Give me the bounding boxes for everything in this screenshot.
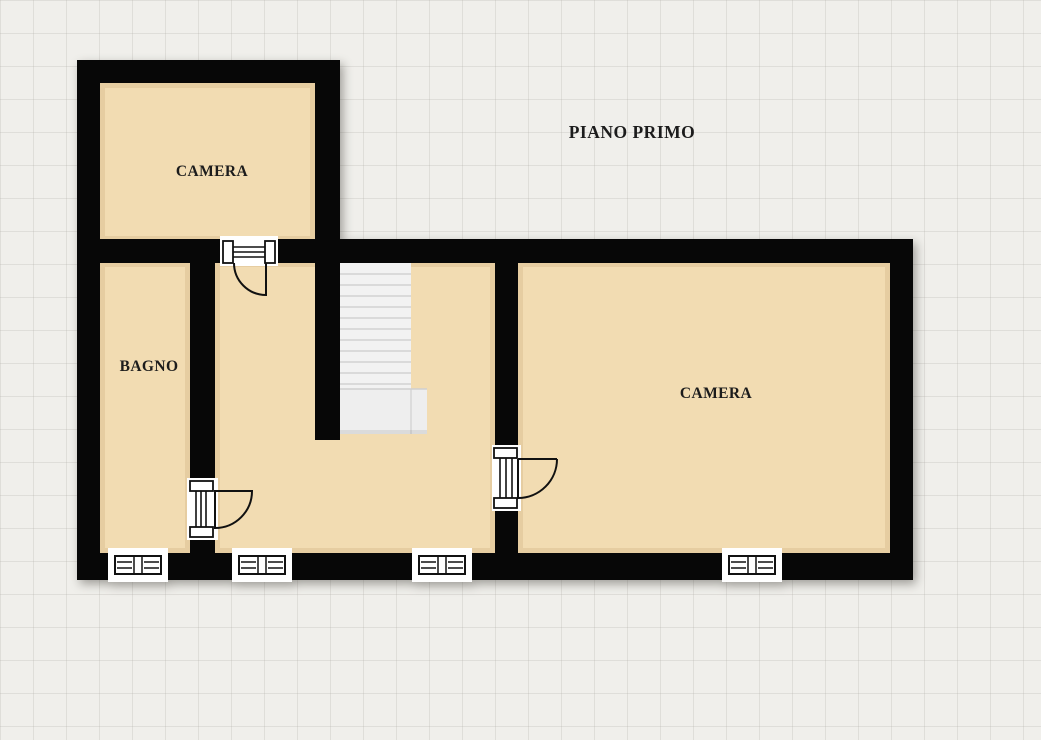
wall-main-top xyxy=(77,239,913,263)
wall-outer-right xyxy=(890,239,913,580)
room-floor-camera-right xyxy=(518,262,890,553)
room-label-camera-right: CAMERA xyxy=(680,385,753,402)
floor-plan-canvas: PIANO PRIMO CAMERA BAGNO CAMERA xyxy=(0,0,1041,740)
stair-landing-shadow xyxy=(340,430,427,434)
wall-outer-left xyxy=(77,60,100,580)
wall-top-left-room-right xyxy=(315,60,340,262)
window-icon-bagno xyxy=(108,548,168,582)
room-floor-bagno xyxy=(100,262,190,553)
wall-top-left-room-top xyxy=(77,60,340,83)
window-icon-hallway-right xyxy=(412,548,472,582)
wall-staircase xyxy=(315,262,340,440)
window-icon-camera-right xyxy=(722,548,782,582)
stair-treads xyxy=(340,262,411,389)
room-label-bagno: BAGNO xyxy=(120,358,179,375)
window-icon-hallway-left xyxy=(232,548,292,582)
building xyxy=(77,60,913,582)
plan-title: PIANO PRIMO xyxy=(569,122,696,142)
room-label-camera-top-left: CAMERA xyxy=(176,163,249,180)
stair-landing xyxy=(340,389,427,434)
floor-plan: PIANO PRIMO CAMERA BAGNO CAMERA xyxy=(0,0,1041,740)
room-floor-camera-top-left xyxy=(100,83,315,241)
wall-outer-bottom xyxy=(77,553,913,580)
